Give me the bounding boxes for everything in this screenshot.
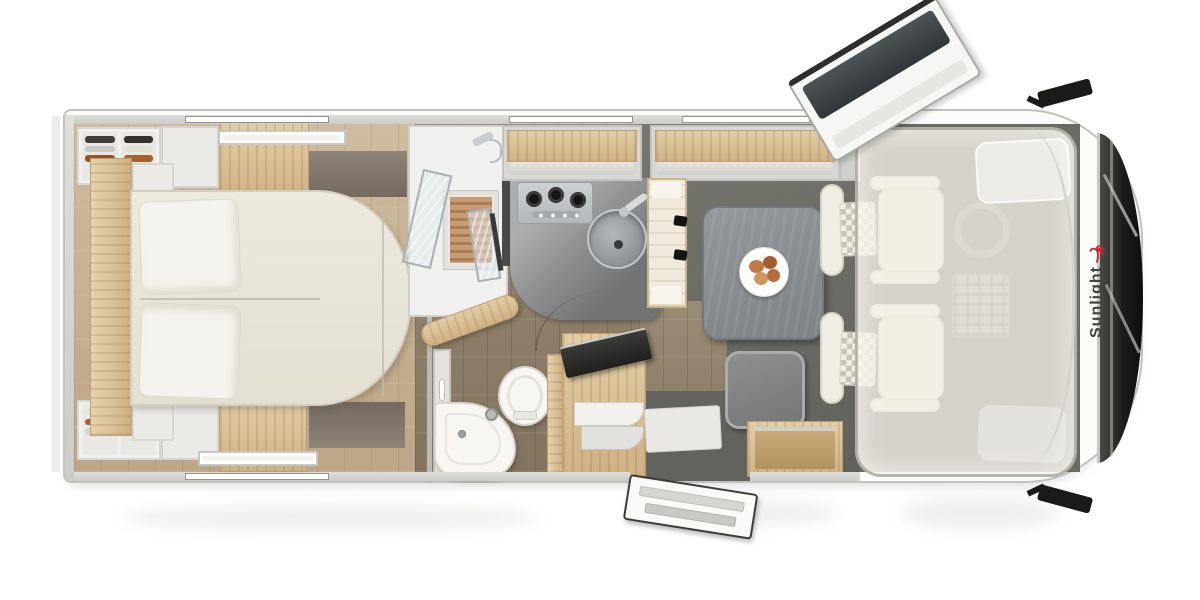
croissant bbox=[754, 272, 768, 285]
headboard-shelf bbox=[90, 158, 132, 436]
side-seat bbox=[725, 351, 805, 429]
locker-front bbox=[507, 130, 637, 162]
window-top-rear bbox=[185, 116, 329, 123]
wiper bbox=[1103, 174, 1139, 237]
croissant bbox=[767, 269, 780, 282]
toilet-flush bbox=[513, 411, 537, 420]
locker-underside bbox=[658, 162, 832, 175]
vehicle-body: Sunlight bbox=[63, 109, 1143, 483]
bench-cushion bbox=[651, 182, 681, 198]
palm-tree-icon bbox=[1088, 245, 1106, 263]
sink-drain bbox=[614, 240, 623, 249]
open-entry-door bbox=[623, 474, 759, 540]
seatbelt-buckle bbox=[673, 215, 687, 227]
storage-box-interior bbox=[755, 427, 835, 469]
toilet bbox=[498, 366, 552, 426]
clothes-item bbox=[124, 136, 154, 143]
window-top-dinette bbox=[682, 116, 810, 123]
wooden-shelf-column bbox=[547, 354, 563, 474]
bottom-wall bbox=[750, 472, 860, 481]
locker-front bbox=[655, 130, 835, 162]
gas-hob bbox=[517, 182, 593, 224]
double-bed bbox=[130, 190, 412, 406]
pillow bbox=[138, 302, 241, 399]
clothes-item bbox=[124, 146, 154, 152]
kitchen-sink bbox=[587, 209, 647, 269]
duvet-seam bbox=[382, 200, 384, 396]
roof-vent-bottom bbox=[198, 451, 318, 466]
door-mat bbox=[644, 405, 722, 453]
basin-faucet bbox=[458, 430, 466, 438]
bottom-wall bbox=[65, 472, 630, 481]
brand-logo-text: Sunlight bbox=[1088, 266, 1106, 338]
dark-shelf-bottom bbox=[309, 402, 405, 448]
clothes-item bbox=[85, 146, 115, 152]
step bbox=[581, 426, 644, 450]
overhead-locker-kitchen bbox=[502, 125, 642, 181]
seatbelt-buckle bbox=[673, 249, 687, 261]
plate bbox=[739, 247, 789, 297]
window-top-center bbox=[509, 116, 633, 123]
clothes-item bbox=[85, 136, 115, 143]
window-bottom-rear bbox=[185, 473, 329, 480]
roof-vent-top bbox=[218, 130, 346, 145]
brand-logo: Sunlight bbox=[1083, 245, 1111, 367]
overhead-locker-dinette bbox=[650, 125, 840, 181]
burner bbox=[570, 192, 586, 208]
bench-cushion bbox=[651, 286, 681, 304]
burner bbox=[548, 187, 564, 203]
cab-door-window bbox=[801, 9, 951, 120]
step bbox=[574, 402, 644, 426]
faucet-base bbox=[619, 207, 629, 217]
bed-center-split bbox=[140, 298, 320, 300]
rear-bumper-strip bbox=[52, 116, 60, 472]
hob-knobs bbox=[532, 211, 580, 218]
locker-underside bbox=[510, 162, 634, 175]
rear-wall bbox=[65, 115, 74, 481]
shower-cabin bbox=[408, 125, 508, 317]
dining-table bbox=[702, 206, 824, 340]
floorplan-canvas: Sunlight bbox=[0, 0, 1200, 600]
ground-shadow bbox=[120, 505, 540, 531]
soap-bottle bbox=[485, 408, 498, 421]
entry-steps bbox=[574, 402, 644, 450]
burner bbox=[526, 191, 542, 207]
ground-shadow bbox=[900, 496, 1060, 530]
cabinet-handle bbox=[439, 379, 445, 401]
shower-hose bbox=[490, 139, 502, 163]
croissant bbox=[763, 256, 777, 269]
pillow bbox=[138, 198, 241, 295]
storage-box bbox=[747, 421, 843, 477]
travel-bench bbox=[647, 178, 687, 308]
